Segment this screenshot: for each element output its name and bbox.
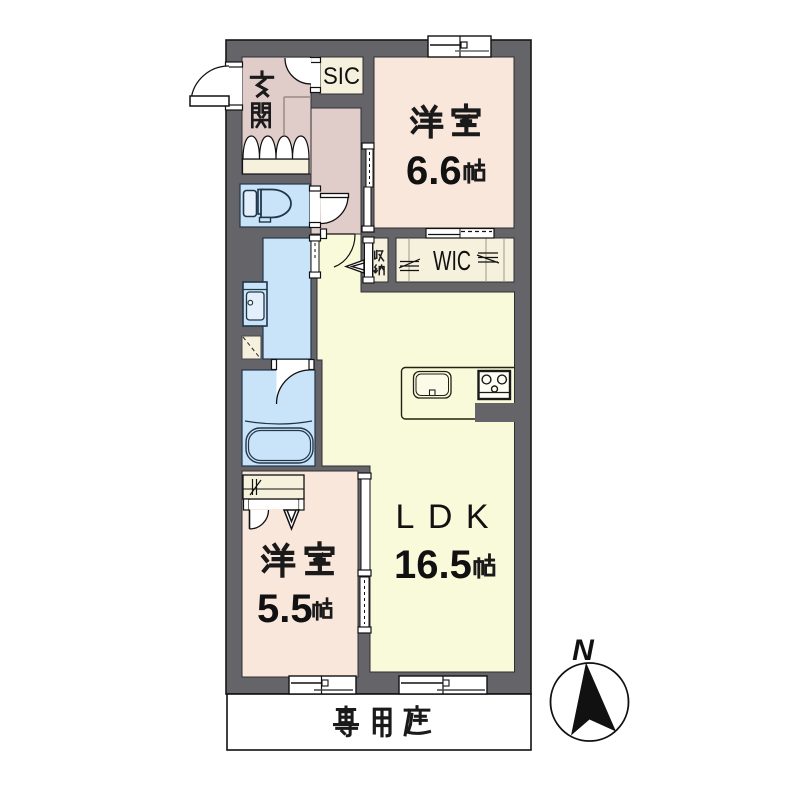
svg-text:SIC: SIC [323, 63, 360, 90]
svg-text:16.5: 16.5 [394, 543, 472, 587]
svg-text:6.6: 6.6 [406, 149, 462, 193]
svg-text:5.5: 5.5 [257, 587, 313, 631]
svg-text:N: N [572, 634, 595, 667]
svg-text:WIC: WIC [433, 245, 471, 276]
svg-text:LDK: LDK [396, 498, 489, 536]
